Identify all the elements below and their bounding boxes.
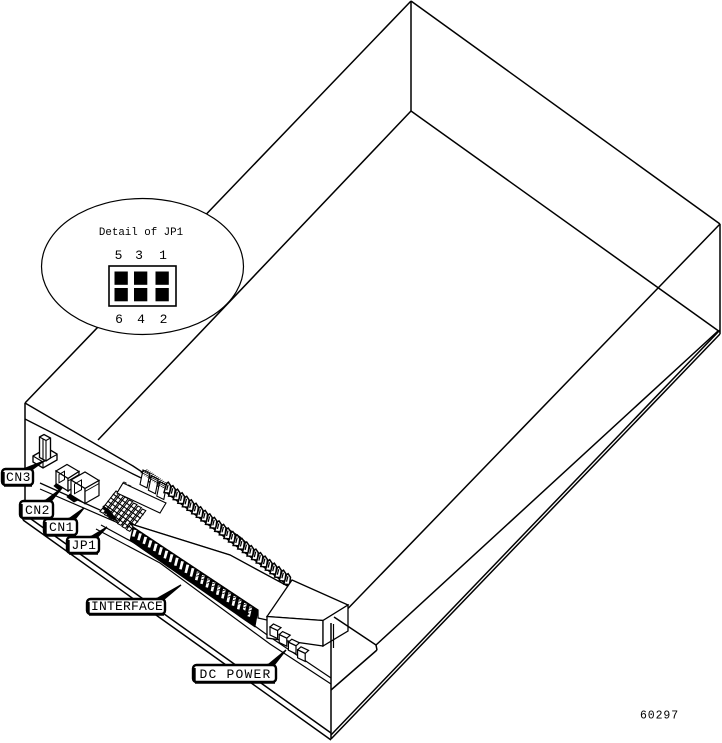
svg-text:3: 3 (135, 248, 143, 263)
svg-text:CN1: CN1 (49, 520, 74, 535)
svg-text:CN2: CN2 (25, 503, 50, 518)
svg-text:2: 2 (160, 312, 168, 327)
svg-text:INTERFACE: INTERFACE (91, 599, 163, 614)
svg-text:5: 5 (115, 248, 123, 263)
svg-text:Detail of JP1: Detail of JP1 (99, 227, 183, 239)
svg-text:JP1: JP1 (72, 538, 97, 553)
svg-text:DC POWER: DC POWER (199, 667, 271, 682)
svg-text:4: 4 (137, 312, 145, 327)
svg-text:CN3: CN3 (6, 470, 31, 485)
svg-text:1: 1 (159, 248, 167, 263)
svg-text:60297: 60297 (640, 710, 679, 723)
svg-text:6: 6 (115, 312, 123, 327)
